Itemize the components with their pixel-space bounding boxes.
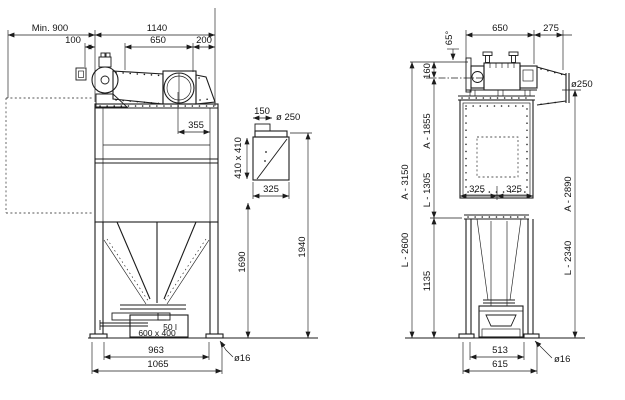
access-door-dashed <box>477 137 518 177</box>
eyebolt-right <box>509 52 518 56</box>
dim-angle: 65° <box>444 31 455 46</box>
dim-top-width: 1140 <box>147 23 167 34</box>
hopper-front <box>117 222 196 303</box>
dim-height-total-a: A - 3150 <box>400 164 411 199</box>
fan-motor-assembly-front <box>76 53 218 108</box>
dim-bolt-spacing-side: 513 <box>492 345 508 356</box>
dim-anchor-hole-side: ø16 <box>554 354 570 365</box>
foot-left <box>90 334 107 338</box>
outlet-transition <box>196 75 215 104</box>
motor-bracket <box>76 68 86 80</box>
slanted-duct <box>113 71 163 104</box>
technical-drawing-page: 50 l 600 x 400 Min. 900 1140 100 650 200… <box>0 0 625 400</box>
dim-hood-neck-width: 150 <box>254 106 270 117</box>
dim-base-width-front: 1065 <box>147 359 168 370</box>
dim-leg-height: 1135 <box>422 271 433 291</box>
support-frame-front <box>90 222 223 338</box>
dim-hood-bottom-height: 1690 <box>237 251 248 272</box>
side-view: 65° 650 275 160 ø250 A - 3150 L - 2600 A… <box>400 23 593 374</box>
hood-collar <box>255 131 287 137</box>
dim-hood-bottom-width: 325 <box>263 184 279 195</box>
dim-unit-width: 650 <box>492 23 508 34</box>
dim-anchor-hole-front: ø16 <box>234 353 250 364</box>
dim-height-upper-l: L - 1305 <box>422 173 433 208</box>
dim-height-upper-a: A - 1855 <box>422 113 433 148</box>
dim-diffuser-length: 275 <box>543 23 559 34</box>
dim-bolt-spacing-front: 963 <box>148 345 164 356</box>
fan-motor-assembly-side <box>466 52 537 96</box>
dim-right-offset: 200 <box>196 35 212 46</box>
dim-min-clearance: Min. 900 <box>32 23 68 34</box>
dim-height-total-l: L - 2600 <box>400 233 411 268</box>
dim-center-left: 325 <box>469 184 485 195</box>
door-clearance-dashed-outline <box>6 98 93 213</box>
foot-right <box>206 334 223 338</box>
bin-box-side <box>479 306 523 337</box>
support-frame-side <box>459 215 539 338</box>
dim-outlet-height-a: A - 2890 <box>563 176 574 211</box>
dust-collector-drawing: 50 l 600 x 400 Min. 900 1140 100 650 200… <box>0 0 625 400</box>
dim-motor-offset: 100 <box>65 35 81 46</box>
dim-center-right: 325 <box>506 184 522 195</box>
dim-hood-top-height: 1940 <box>297 236 308 257</box>
slide-gate <box>112 313 170 320</box>
bin-size-label: 600 x 400 <box>138 328 176 338</box>
dim-fan-section-width: 650 <box>150 35 166 46</box>
dim-outlet-center-offset: 355 <box>188 120 204 131</box>
exhaust-hood-detail: 150 ø 250 410 x 410 325 1690 1940 <box>233 106 312 338</box>
foot-left-side <box>459 334 474 338</box>
dust-bin-front: 50 l 600 x 400 <box>100 305 188 338</box>
outlet-diffuser-cone <box>537 67 569 105</box>
dim-hood-duct-diameter: ø 250 <box>276 112 300 123</box>
eyebolt-left <box>483 52 492 56</box>
motor-shaft-circle <box>472 72 483 83</box>
dim-outlet-height-l: L - 2340 <box>563 241 574 276</box>
dim-base-width-side: 615 <box>492 359 508 370</box>
dim-outlet-diameter: ø250 <box>571 79 593 90</box>
dim-axis-offset: 160 <box>422 63 433 79</box>
foot-right-side <box>524 334 539 338</box>
anchor-hole-leader-side <box>535 341 552 358</box>
hood-neck <box>255 124 270 131</box>
dim-hood-body-size: 410 x 410 <box>233 137 244 179</box>
